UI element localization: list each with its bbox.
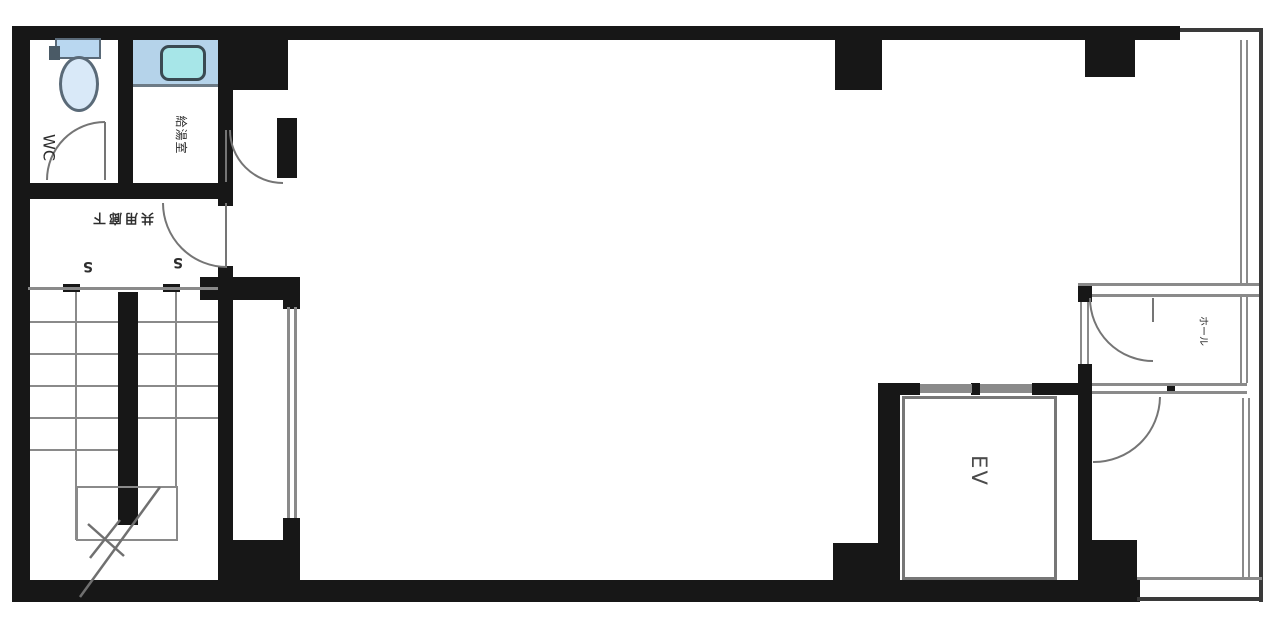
elevator-wall-top-a (900, 383, 920, 395)
label-stair-mark-right: S (170, 249, 186, 275)
column-bottom-1 (833, 543, 878, 584)
balcony-outer-right (1259, 28, 1263, 602)
hall-upper-bottom-line-b (1092, 391, 1247, 394)
wall-wc-kitchen-divider (118, 40, 133, 183)
label-wc: WC (27, 129, 72, 167)
hall-upper-bottom-line-a (1092, 383, 1247, 386)
vestibule-stair-line (28, 287, 218, 290)
elevator-door-center-post (971, 383, 980, 395)
elevator-door-panel-b (980, 384, 1032, 393)
elevator-door-panel-a (920, 384, 972, 393)
vestibule-door-stub-bottom (218, 266, 233, 279)
window-lobby-strip-b (294, 307, 297, 518)
wall-nook-top-chunk (233, 26, 288, 90)
label-stair-mark-left: S (80, 253, 96, 279)
door-arc-main-entry (230, 130, 283, 183)
window-east-bottom-a (1242, 398, 1244, 577)
label-elevator: EV (950, 442, 1008, 500)
wall-left (12, 26, 30, 602)
wall-below-wc (28, 183, 233, 199)
elevator-wall-left (878, 383, 900, 593)
balcony-bottom-inner (1137, 577, 1262, 580)
elevator-wall-top-b (1032, 383, 1092, 395)
stairwell (30, 292, 218, 580)
balcony-strip (1248, 32, 1259, 577)
wall-stair-right (218, 288, 233, 585)
balcony-outer-bottom (1137, 597, 1263, 601)
label-kitchenette: 給湯室 (162, 98, 202, 172)
window-east-mid-a (1240, 297, 1242, 383)
label-corridor: 共用廊下 (58, 207, 186, 233)
room-hall-lower (1092, 398, 1242, 577)
vestibule-door-stub-top (218, 197, 233, 206)
wall-kitchen-right (218, 40, 233, 183)
wall-lobby-strip-top (283, 277, 300, 309)
wall-top (12, 26, 1180, 40)
floor-plan: WC 給湯室 共用廊下 S S ホール EV (0, 0, 1280, 621)
wall-door-stub (277, 118, 297, 178)
window-lobby-strip-a (287, 307, 290, 518)
window-east-top-a (1240, 40, 1242, 283)
wall-bottom (12, 580, 1140, 602)
label-hall: ホール (1192, 306, 1218, 356)
